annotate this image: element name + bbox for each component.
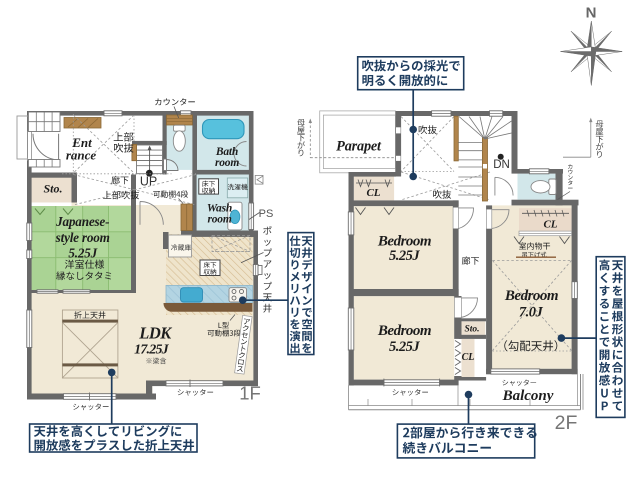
svg-text:Bedroom: Bedroom [504,288,558,304]
svg-text:DN: DN [493,159,510,171]
svg-text:Parapet: Parapet [336,139,382,155]
svg-text:Japanese-: Japanese- [55,214,109,229]
svg-text:Bedroom: Bedroom [377,323,431,339]
svg-text:5.25J: 5.25J [389,339,420,355]
svg-text:Bedroom: Bedroom [377,233,431,249]
svg-text:CL: CL [366,187,380,199]
svg-text:PS: PS [259,208,274,220]
svg-text:Sto.: Sto. [464,325,479,335]
svg-text:Balcony: Balcony [502,388,554,404]
svg-text:N: N [586,5,597,22]
svg-text:2F: 2F [555,412,578,434]
svg-text:room: room [215,157,239,169]
svg-text:CL: CL [462,352,475,363]
svg-text:UP: UP [140,175,157,189]
svg-text:5.25J: 5.25J [389,248,420,264]
svg-text:Sto.: Sto. [43,182,62,196]
svg-text:5.25J: 5.25J [68,246,97,261]
svg-text:room: room [207,214,231,226]
svg-text:17.25J: 17.25J [134,343,170,358]
svg-text:7.0J: 7.0J [519,305,544,321]
svg-text:CL: CL [543,219,557,231]
svg-text:rance: rance [66,148,97,163]
svg-text:style room: style room [55,230,110,245]
svg-text:LDK: LDK [138,324,172,343]
svg-text:1F: 1F [239,383,261,404]
